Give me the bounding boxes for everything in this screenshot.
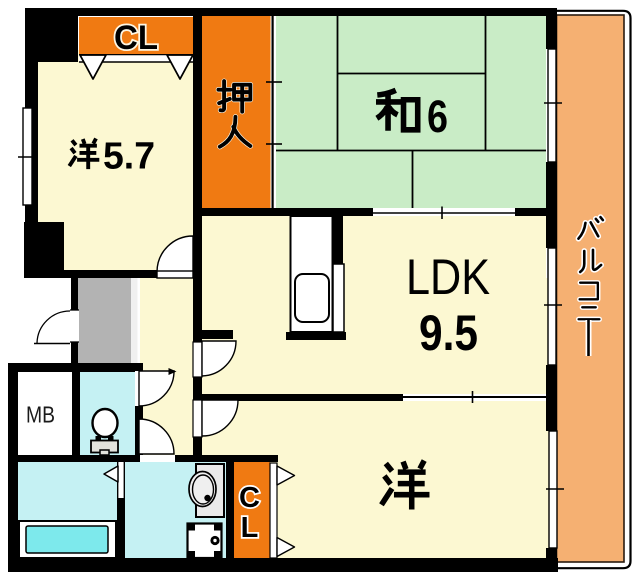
svg-text:CL: CL: [114, 19, 158, 57]
svg-text:LDK: LDK: [406, 249, 490, 305]
svg-text:6: 6: [427, 91, 448, 142]
svg-text:5.7: 5.7: [103, 136, 155, 178]
svg-text:MB: MB: [26, 402, 55, 428]
svg-text:9.5: 9.5: [419, 305, 478, 361]
svg-text:C: C: [239, 482, 260, 514]
svg-text:L: L: [241, 512, 259, 544]
